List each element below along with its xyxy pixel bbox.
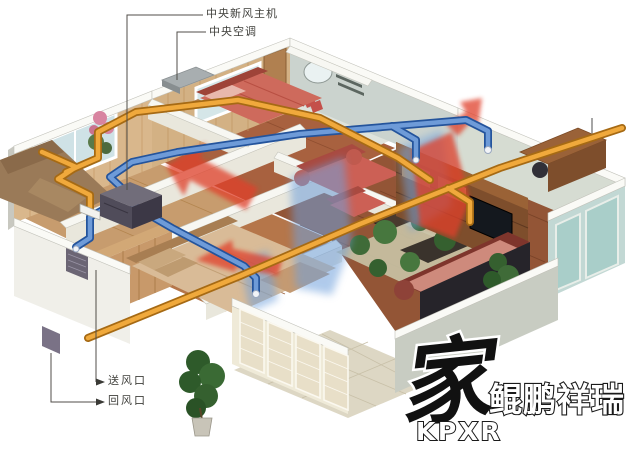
- hvac-cutaway-scene: 家 鲲鹏祥瑞 KPXR 中央新风主机 中央空调 送风口 回风口: [0, 0, 640, 456]
- supply-vent-label: 送风口: [108, 375, 147, 387]
- ceiling-diffuser: [73, 246, 79, 252]
- main-unit-label: 中央新风主机: [206, 8, 278, 20]
- glass-pane: [556, 214, 580, 290]
- ceiling-diffuser: [485, 147, 492, 154]
- return-vent-label: 回风口: [108, 395, 147, 407]
- hvac-illustration: 家 鲲鹏祥瑞 KPXR: [0, 0, 640, 456]
- central-ac-label: 中央空调: [209, 26, 257, 38]
- patio-plant: [179, 350, 225, 436]
- glass-pane: [586, 196, 618, 278]
- logo-brand: 鲲鹏祥瑞: [489, 380, 625, 419]
- callout-arrowheads: [96, 379, 105, 406]
- return-grille: [42, 326, 60, 354]
- ceiling-diffuser: [253, 291, 260, 298]
- logo-abbr: KPXR: [416, 417, 502, 446]
- ceiling-diffuser: [413, 157, 419, 163]
